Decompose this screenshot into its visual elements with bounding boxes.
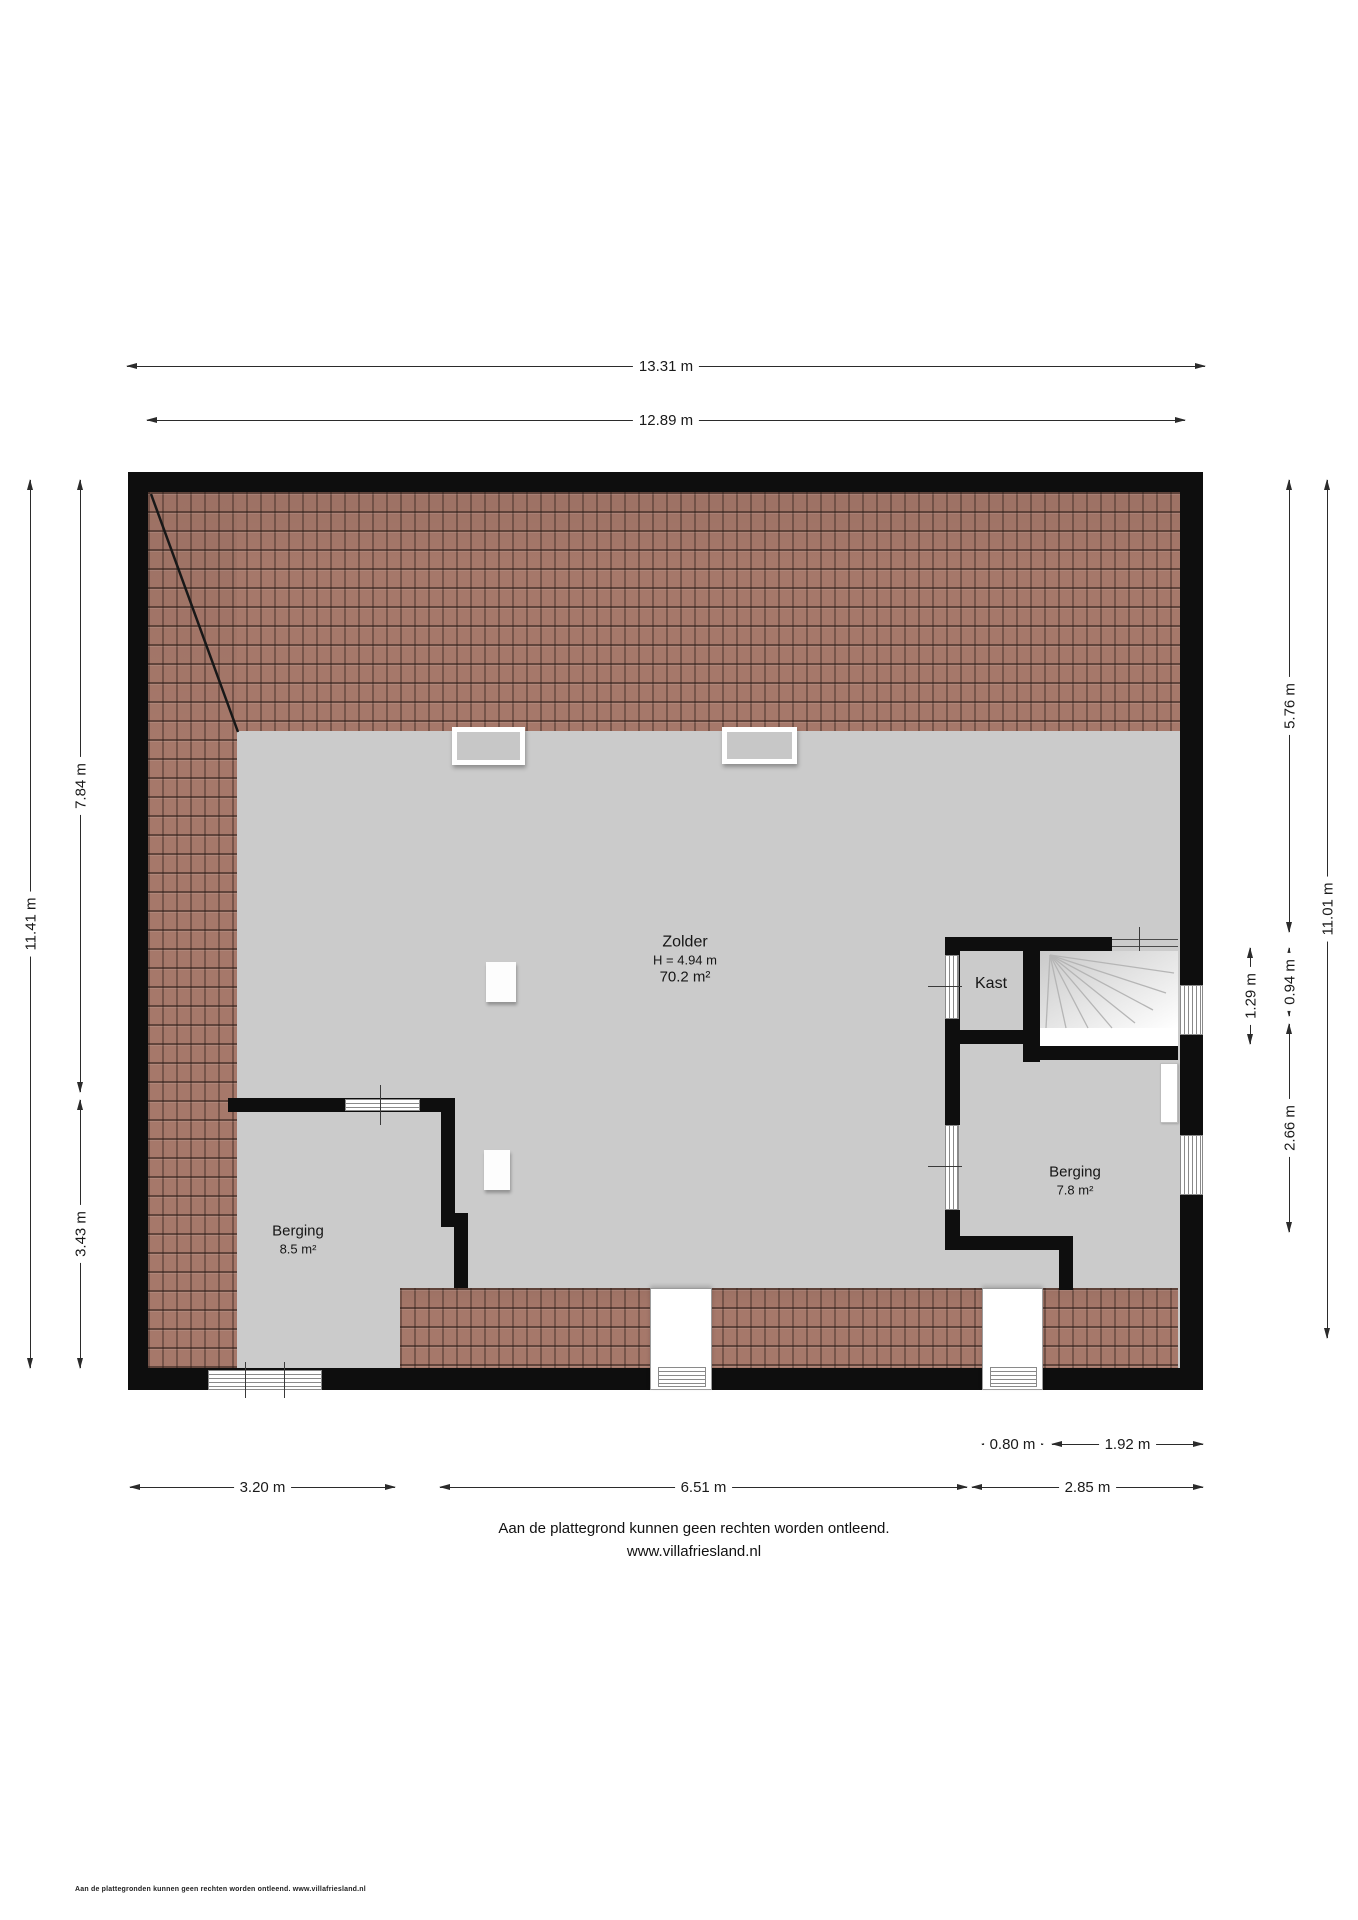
dim-kast-depth: 0.94 m [1289,948,1290,1016]
floorplan-page: 13.31 m 12.89 m 11.41 m 7.84 m 3.43 m 1.… [0,0,1358,1920]
arrow-down-icon [1286,922,1292,933]
dim-bottom-window-span: 1.92 m [1052,1444,1203,1445]
staircase [1040,951,1178,1046]
arrow-left-icon [439,1484,450,1490]
arrow-down-icon [1324,1328,1330,1339]
arrow-right-icon [957,1484,968,1490]
room-area: 7.8 m² [1049,1182,1101,1198]
arrow-left-icon [146,417,157,423]
window-tick [380,1085,381,1125]
window [208,1370,322,1390]
dim-label: 3.20 m [234,1479,292,1496]
chimney-box [484,1150,510,1190]
arrow-left-icon [971,1484,982,1490]
arrow-right-icon [1195,363,1206,369]
floorplan-drawing: Zolder H = 4.94 m 70.2 m² Kast Berging 8… [128,472,1203,1390]
room-label-zolder: Zolder H = 4.94 m 70.2 m² [653,933,717,988]
dim-label: 11.41 m [23,891,40,956]
window [345,1099,420,1111]
room-name: Berging [272,1223,324,1242]
dim-label: 2.85 m [1059,1479,1117,1496]
wall-segment [441,1098,455,1225]
arrow-right-icon [1193,1441,1204,1447]
wall-segment [945,1030,1040,1044]
dim-label: 2.66 m [1282,1099,1299,1157]
dim-bottom-left: 3.20 m [130,1487,395,1488]
room-name: Berging [1049,1164,1101,1183]
arrow-down-icon [1286,1222,1292,1233]
dim-label: 3.43 m [73,1205,90,1263]
roof-tiles-bottom [400,1288,1178,1368]
wall-segment [945,1044,960,1125]
window [945,1125,959,1210]
skylight-window [452,727,525,765]
room-label-kast: Kast [975,974,1007,994]
chimney-box [486,962,516,1002]
window [1180,1135,1203,1195]
window [945,955,959,1019]
dim-left-total: 11.41 m [30,480,31,1368]
dormer-window [982,1288,1043,1390]
dim-berging-right-height: 2.66 m [1289,1024,1290,1232]
dim-label: 11.01 m [1320,876,1337,941]
arrow-right-icon [1193,1484,1204,1490]
wall-segment [228,1098,455,1112]
arrow-down-icon [27,1358,33,1369]
window [1180,985,1203,1035]
dim-left-lower: 3.43 m [80,1100,81,1368]
window-tick [928,986,962,987]
dim-label: 6.51 m [675,1479,733,1496]
arrow-down-icon [77,1358,83,1369]
dim-top-outer: 13.31 m [127,366,1205,367]
disclaimer-text: Aan de plattegrond kunnen geen rechten w… [30,1520,1358,1537]
dim-label: 12.89 m [633,412,699,429]
website-text: www.villafriesland.nl [30,1543,1358,1560]
dim-label: 5.76 m [1282,677,1299,735]
dim-label: 1.29 m [1243,967,1260,1025]
wall-segment [1059,1250,1073,1290]
arrow-down-icon [77,1082,83,1093]
arrow-up-icon [77,1099,83,1110]
room-label-berging-right: Berging 7.8 m² [1049,1164,1101,1199]
arrow-right-icon [385,1484,396,1490]
arrow-left-icon [129,1484,140,1490]
arrow-up-icon [27,479,33,490]
dim-label: 13.31 m [633,358,699,375]
roof-tiles-top [148,492,1180,731]
window [990,1367,1037,1387]
dim-left-upper: 7.84 m [80,480,81,1092]
corner-disclaimer: Aan de plattegronden kunnen geen rechten… [75,1886,366,1893]
wall-segment [454,1227,468,1288]
window-tick [928,1166,962,1167]
dim-right-upper: 5.76 m [1289,480,1290,932]
room-name: Kast [975,974,1007,994]
room-area: 70.2 m² [653,969,717,988]
room-label-berging-left: Berging 8.5 m² [272,1223,324,1258]
dim-bottom-middle: 6.51 m [440,1487,967,1488]
arrow-up-icon [77,479,83,490]
arrow-up-icon [1286,1023,1292,1034]
room-name: Zolder [653,933,717,953]
dim-bottom-right: 2.85 m [972,1487,1203,1488]
dim-label: 0.80 m [984,1436,1042,1453]
dim-label: 0.94 m [1282,953,1299,1011]
wall-segment [441,1213,468,1227]
door-leaf [1160,1063,1178,1123]
roof-hip-line [148,492,240,734]
window-tick [245,1362,246,1398]
stair-railing [1112,939,1178,947]
arrow-left-icon [1051,1441,1062,1447]
arrow-up-icon [1247,947,1253,958]
arrow-up-icon [1286,479,1292,490]
wall-segment [1033,1046,1178,1060]
arrow-up-icon [1324,479,1330,490]
dim-top-inner: 12.89 m [147,420,1185,421]
wall-segment [945,1236,1073,1250]
dim-bottom-dormer: 0.80 m [982,1444,1043,1445]
dim-label: 7.84 m [73,757,90,815]
skylight-window [722,727,797,764]
dormer-window [650,1288,712,1390]
arrow-down-icon [1247,1034,1253,1045]
dim-stair-bay: 1.29 m [1250,948,1251,1044]
arrow-left-icon [126,363,137,369]
room-height: H = 4.94 m [653,953,717,969]
dim-right-total: 11.01 m [1327,480,1328,1338]
arrow-right-icon [1175,417,1186,423]
dim-label: 1.92 m [1099,1436,1157,1453]
window-tick [284,1362,285,1398]
window [658,1367,706,1387]
room-area: 8.5 m² [272,1241,324,1257]
